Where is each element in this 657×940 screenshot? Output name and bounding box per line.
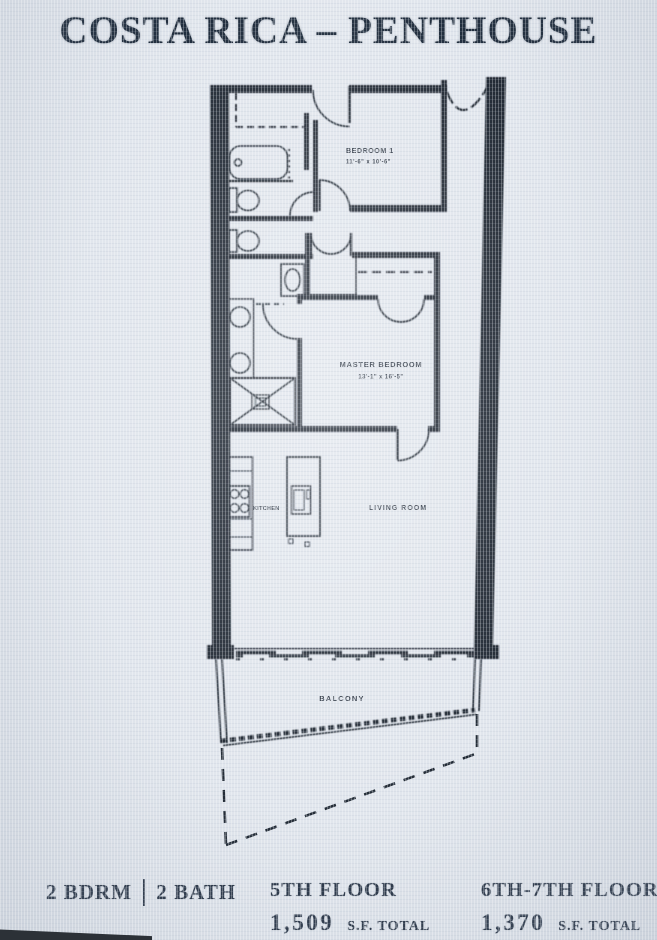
bedroom1-door-arc (319, 180, 350, 211)
entry-door-arc (313, 86, 350, 127)
curved-exterior-wall (447, 88, 487, 110)
kitchen-island (287, 457, 320, 547)
master-door-arc (398, 429, 430, 461)
toilet-1 (229, 188, 259, 212)
label-living-room: LIVING ROOM (369, 505, 427, 512)
label-bedroom1-dims: 11'-6" x 10'-6" (346, 160, 391, 166)
page-background: { "title": "COSTA RICA – PENTHOUSE", "pl… (0, 0, 657, 940)
stove (229, 486, 250, 517)
entry-closet-dashes (236, 93, 306, 127)
closet-door-arcs (378, 299, 424, 322)
interior-walls (213, 80, 447, 432)
pedestal-sink (281, 264, 304, 296)
floor-plan: BEDROOM 1 11'-6" x 10'-6" MASTER BEDROOM… (0, 0, 657, 940)
toilet-2 (229, 230, 259, 252)
bath2-door-arc (290, 192, 314, 216)
label-kitchen: KITCHEN (253, 506, 280, 512)
master-bath-door-arc (263, 303, 297, 339)
balcony-dashed-outline (222, 714, 478, 845)
sliding-doors (234, 649, 474, 660)
suite-double-doors (311, 233, 351, 256)
bathtub (227, 146, 293, 181)
label-bedroom1: BEDROOM 1 (346, 148, 394, 155)
closet-rod (356, 253, 432, 295)
vanity-sinks (228, 299, 285, 378)
door-arcs (263, 86, 487, 461)
label-master-bedroom: MASTER BEDROOM (340, 360, 423, 369)
page-title: COSTA RICA – PENTHOUSE (0, 8, 657, 53)
shower (230, 378, 295, 425)
label-balcony: BALCONY (319, 694, 364, 703)
label-master-bedroom-dims: 13'-1" x 16'-5" (358, 375, 403, 381)
